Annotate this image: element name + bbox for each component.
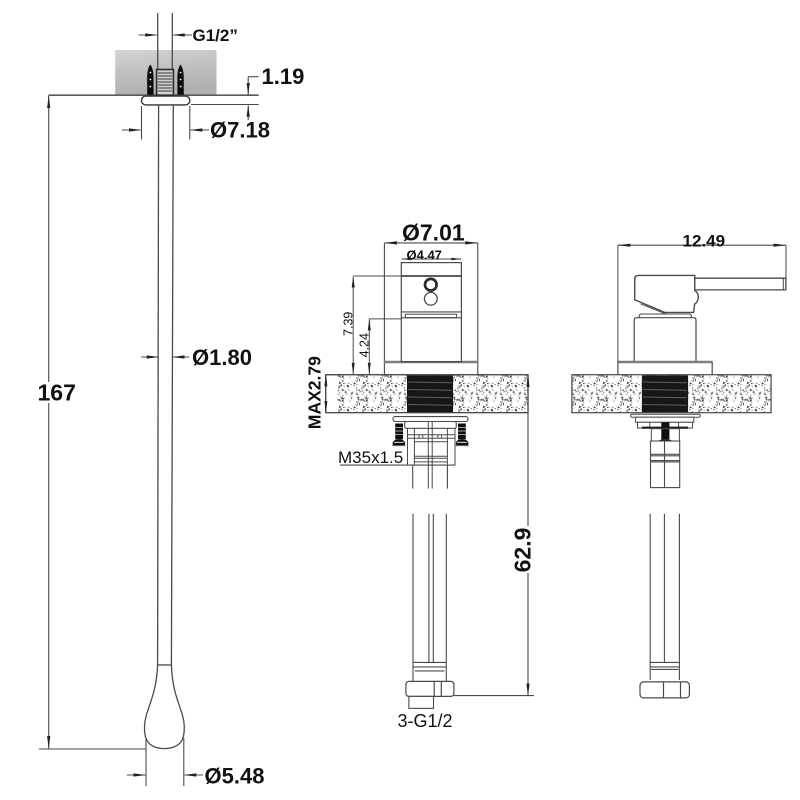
- svg-text:Ø7.01: Ø7.01: [402, 220, 465, 246]
- svg-text:12.49: 12.49: [683, 231, 726, 250]
- svg-text:MAX2.79: MAX2.79: [305, 356, 325, 429]
- svg-text:M35x1.5: M35x1.5: [338, 448, 403, 467]
- svg-text:Ø4.47: Ø4.47: [407, 248, 442, 263]
- svg-text:4.24: 4.24: [358, 333, 372, 357]
- svg-text:3-G1/2: 3-G1/2: [398, 711, 453, 731]
- svg-text:62.9: 62.9: [510, 528, 536, 573]
- svg-text:1.19: 1.19: [262, 64, 305, 89]
- svg-text:Ø5.48: Ø5.48: [205, 764, 265, 789]
- svg-text:167: 167: [38, 380, 76, 406]
- svg-text:Ø7.18: Ø7.18: [210, 118, 270, 143]
- svg-text:G1/2”: G1/2”: [193, 26, 238, 45]
- svg-text:Ø1.80: Ø1.80: [192, 345, 252, 370]
- svg-text:7.39: 7.39: [342, 312, 356, 336]
